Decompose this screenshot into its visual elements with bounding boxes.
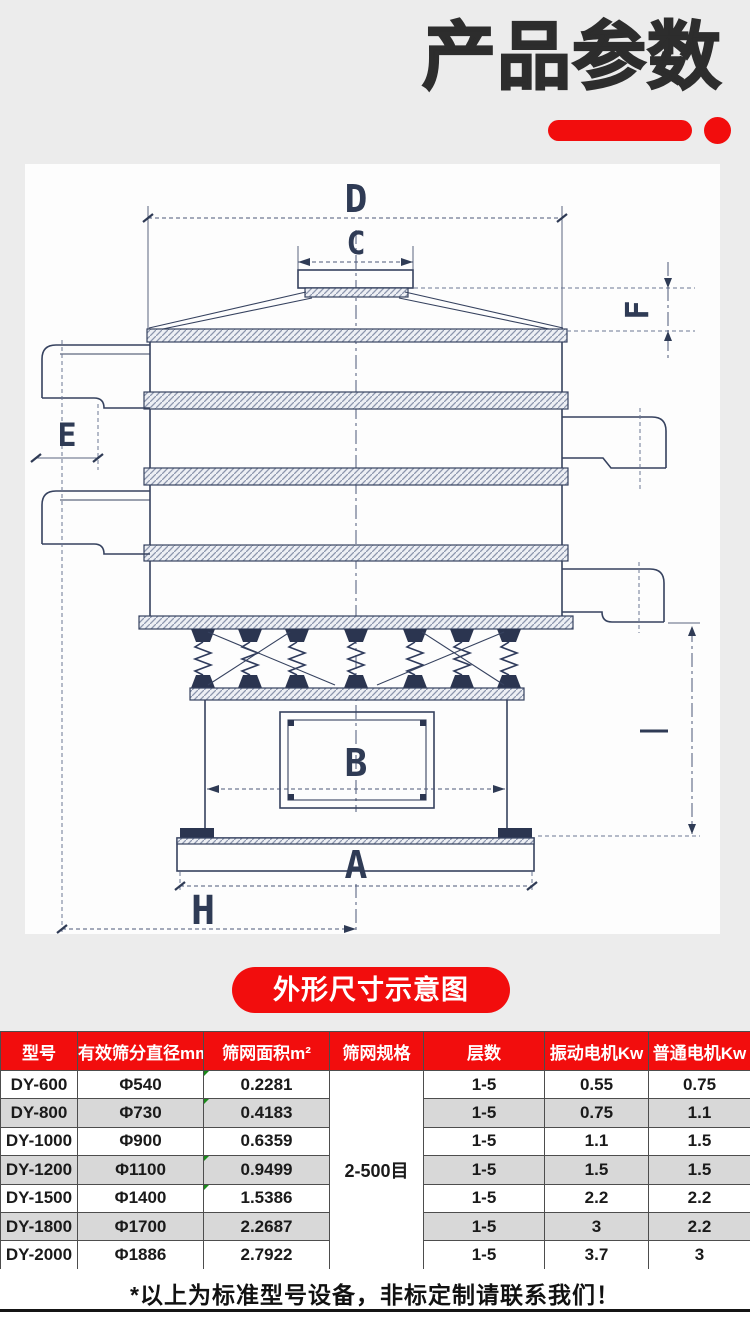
svg-text:E: E xyxy=(57,416,76,454)
svg-text:B: B xyxy=(345,741,368,785)
cell-vib: 2.2 xyxy=(545,1184,649,1212)
cell-vib: 1.5 xyxy=(545,1156,649,1184)
cell-area: 2.7922 xyxy=(204,1241,330,1269)
col-vib-motor: 振动电机Kw xyxy=(545,1032,649,1071)
cell-layers: 1-5 xyxy=(424,1241,545,1269)
cell-ord: 2.2 xyxy=(649,1184,750,1212)
footer-note: *以上为标准型号设备，非标定制请联系我们！ xyxy=(0,1269,750,1310)
diagram-caption-pill[interactable]: 外形尺寸示意图 xyxy=(232,967,510,1013)
svg-text:F: F xyxy=(618,300,656,319)
cell-diameter: Φ1100 xyxy=(78,1156,204,1184)
dim-c: C xyxy=(298,224,413,280)
dim-right-height xyxy=(538,626,700,836)
cell-area: 0.2281 xyxy=(204,1071,330,1099)
cell-area: 2.2687 xyxy=(204,1212,330,1240)
cell-ord: 0.75 xyxy=(649,1071,750,1099)
left-outlet-upper xyxy=(42,345,150,408)
dimension-diagram-panel: D C xyxy=(25,164,720,934)
cell-diameter: Φ1400 xyxy=(78,1184,204,1212)
cell-area: 0.6359 xyxy=(204,1127,330,1155)
cell-vib: 0.75 xyxy=(545,1099,649,1127)
svg-text:C: C xyxy=(346,224,365,262)
cell-model: DY-800 xyxy=(1,1099,78,1127)
cell-mesh-spec: 2-500目 xyxy=(330,1071,424,1270)
cell-vib: 3.7 xyxy=(545,1241,649,1269)
cell-area: 1.5386 xyxy=(204,1184,330,1212)
cell-layers: 1-5 xyxy=(424,1127,545,1155)
title-underline-dot xyxy=(704,117,731,144)
svg-text:D: D xyxy=(345,177,368,221)
cell-vib: 3 xyxy=(545,1212,649,1240)
footer-divider xyxy=(0,1309,750,1312)
right-outlet-middle xyxy=(562,408,666,492)
col-model: 型号 xyxy=(1,1032,78,1071)
table-header-row: 型号 有效筛分直径mm 筛网面积m² 筛网规格 层数 振动电机Kw 普通电机Kw xyxy=(1,1032,750,1071)
cell-ord: 1.1 xyxy=(649,1099,750,1127)
cell-model: DY-1200 xyxy=(1,1156,78,1184)
dim-h: H xyxy=(57,888,356,934)
dimension-diagram: D C xyxy=(25,164,720,934)
cell-layers: 1-5 xyxy=(424,1156,545,1184)
cell-diameter: Φ1700 xyxy=(78,1212,204,1240)
cell-model: DY-1500 xyxy=(1,1184,78,1212)
cell-vib: 0.55 xyxy=(545,1071,649,1099)
cell-area: 0.4183 xyxy=(204,1099,330,1127)
cell-vib: 1.1 xyxy=(545,1127,649,1155)
cell-layers: 1-5 xyxy=(424,1184,545,1212)
right-outlet-bottom xyxy=(562,562,700,633)
page-title: 产品参数 xyxy=(422,16,722,97)
cell-ord: 3 xyxy=(649,1241,750,1269)
machine-lid xyxy=(147,270,567,342)
col-layers: 层数 xyxy=(424,1032,545,1071)
col-area: 筛网面积m² xyxy=(204,1032,330,1071)
cell-diameter: Φ730 xyxy=(78,1099,204,1127)
cell-layers: 1-5 xyxy=(424,1099,545,1127)
cell-diameter: Φ900 xyxy=(78,1127,204,1155)
left-outlet-lower xyxy=(42,491,150,554)
svg-text:H: H xyxy=(191,888,215,934)
cell-model: DY-1800 xyxy=(1,1212,78,1240)
cell-ord: 2.2 xyxy=(649,1212,750,1240)
cell-ord: 1.5 xyxy=(649,1127,750,1155)
cell-layers: 1-5 xyxy=(424,1212,545,1240)
cell-diameter: Φ540 xyxy=(78,1071,204,1099)
cell-area: 0.9499 xyxy=(204,1156,330,1184)
dim-e: E xyxy=(31,340,103,933)
cell-model: DY-600 xyxy=(1,1071,78,1099)
cell-layers: 1-5 xyxy=(424,1071,545,1099)
cell-ord: 1.5 xyxy=(649,1156,750,1184)
title-underline-bar xyxy=(548,120,692,141)
col-spec: 筛网规格 xyxy=(330,1032,424,1071)
cell-model: DY-2000 xyxy=(1,1241,78,1269)
cell-diameter: Φ1886 xyxy=(78,1241,204,1269)
svg-text:A: A xyxy=(345,843,368,887)
table-row: DY-600 Φ540 0.2281 2-500目 1-5 0.55 0.75 xyxy=(1,1071,750,1099)
cell-model: DY-1000 xyxy=(1,1127,78,1155)
col-ord-motor: 普通电机Kw xyxy=(649,1032,750,1071)
spec-table: 型号 有效筛分直径mm 筛网面积m² 筛网规格 层数 振动电机Kw 普通电机Kw… xyxy=(0,1031,750,1270)
dim-a: A xyxy=(175,843,537,892)
col-diameter: 有效筛分直径mm xyxy=(78,1032,204,1071)
footer-note-bar: *以上为标准型号设备，非标定制请联系我们！ xyxy=(0,1269,750,1317)
